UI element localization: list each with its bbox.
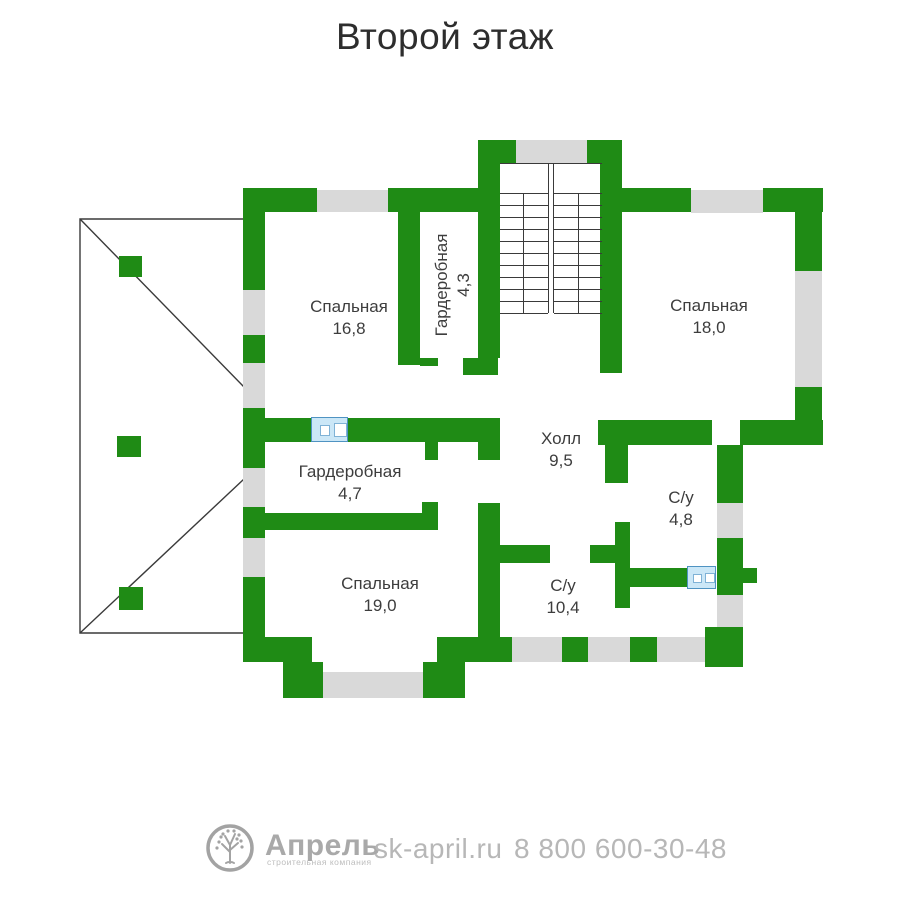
room-label-wardrobe-4-7: Гардеробная 4,7	[299, 461, 402, 505]
floor-plan: Спальная 16,8 Гардеробная 4,3 Спальная 1…	[0, 0, 900, 900]
wall-segment	[562, 637, 588, 662]
garage-roof-outline	[78, 217, 246, 635]
wall-segment	[265, 637, 312, 662]
staircase	[500, 163, 602, 312]
window	[588, 637, 630, 662]
wall-segment	[600, 140, 622, 212]
room-area: 10,4	[546, 597, 579, 619]
window	[243, 538, 265, 577]
room-area: 4,3	[453, 234, 475, 337]
wall-segment	[628, 568, 688, 587]
wall-segment	[420, 358, 438, 366]
brand-subtitle: строительная компания	[267, 857, 372, 867]
window	[243, 290, 265, 335]
window	[317, 190, 388, 212]
room-label-su-10-4: С/у 10,4	[546, 575, 579, 619]
radiator	[687, 566, 716, 589]
stair-center-divider	[548, 164, 554, 313]
room-name: Гардеробная	[299, 461, 402, 483]
room-label-bedroom-19-0: Спальная 19,0	[341, 573, 419, 617]
wall-segment	[478, 212, 500, 358]
room-name: Спальная	[310, 296, 388, 318]
wall-segment	[478, 140, 500, 212]
room-area: 4,8	[668, 509, 694, 531]
wall-segment	[478, 503, 500, 637]
wall-segment	[622, 188, 691, 212]
footer: Апрель строительная компания sk-april.ru…	[0, 810, 900, 900]
wall-segment	[425, 442, 438, 460]
room-name: С/у	[546, 575, 579, 597]
room-name: Спальная	[670, 295, 748, 317]
wall-segment	[243, 577, 265, 662]
room-area: 4,7	[299, 483, 402, 505]
window	[516, 140, 587, 163]
wall-segment	[615, 522, 630, 608]
wall-segment	[388, 188, 478, 212]
stair-flight-midline	[578, 193, 579, 313]
wall-segment	[500, 545, 550, 563]
room-name: С/у	[668, 487, 694, 509]
window	[717, 503, 743, 538]
wall-segment	[265, 513, 427, 530]
wall-segment	[600, 212, 622, 373]
window	[657, 637, 705, 662]
room-name: Спальная	[341, 573, 419, 595]
radiator-section	[320, 425, 330, 436]
window	[243, 468, 265, 507]
room-area: 19,0	[341, 595, 419, 617]
radiator-section	[334, 423, 347, 437]
wall-segment	[740, 420, 823, 445]
room-area: 16,8	[310, 318, 388, 340]
wall-segment	[478, 418, 500, 460]
wall-segment	[743, 568, 757, 583]
wall-segment	[705, 627, 743, 667]
wall-segment	[243, 210, 265, 290]
wall-segment	[717, 538, 743, 595]
stair-flight-right	[554, 193, 602, 314]
wall-segment	[398, 212, 420, 365]
wall-segment	[717, 445, 743, 503]
wall-segment	[283, 662, 323, 698]
room-label-bedroom-18-0: Спальная 18,0	[670, 295, 748, 339]
wall-segment	[437, 637, 512, 662]
phone-number: 8 800 600-30-48	[514, 833, 727, 865]
room-area: 18,0	[670, 317, 748, 339]
wall-segment	[598, 420, 712, 445]
wall-segment	[630, 637, 657, 662]
tree-logo-icon	[204, 822, 256, 874]
wall-segment	[243, 507, 265, 538]
chimney	[117, 436, 141, 457]
wall-segment	[500, 140, 516, 163]
window	[323, 672, 423, 698]
radiator-section	[693, 574, 702, 583]
room-area: 9,5	[541, 450, 581, 472]
wall-segment	[463, 358, 498, 375]
stair-flight-left	[500, 193, 548, 314]
window	[512, 637, 562, 662]
room-label-su-4-8: С/у 4,8	[668, 487, 694, 531]
wall-segment	[243, 188, 317, 212]
room-label-wardrobe-4-3: Гардеробная 4,3	[431, 234, 475, 337]
window	[243, 363, 265, 408]
stair-flight-midline	[523, 193, 524, 313]
window	[795, 271, 822, 387]
radiator-section	[705, 573, 715, 583]
chimney	[119, 587, 143, 610]
wall-segment	[795, 190, 822, 271]
room-label-bedroom-16-8: Спальная 16,8	[310, 296, 388, 340]
wall-segment	[243, 335, 265, 363]
wall-segment	[243, 408, 265, 468]
wall-segment	[265, 418, 312, 442]
wall-segment	[423, 662, 465, 698]
chimney	[119, 256, 142, 277]
website-link: sk-april.ru	[374, 833, 502, 865]
radiator	[311, 417, 348, 442]
room-label-hall-9-5: Холл 9,5	[541, 428, 581, 472]
window	[717, 595, 743, 627]
wall-segment	[587, 140, 600, 163]
wall-segment	[348, 418, 478, 442]
window	[691, 190, 763, 213]
room-name: Холл	[541, 428, 581, 450]
room-name: Гардеробная	[431, 234, 453, 337]
